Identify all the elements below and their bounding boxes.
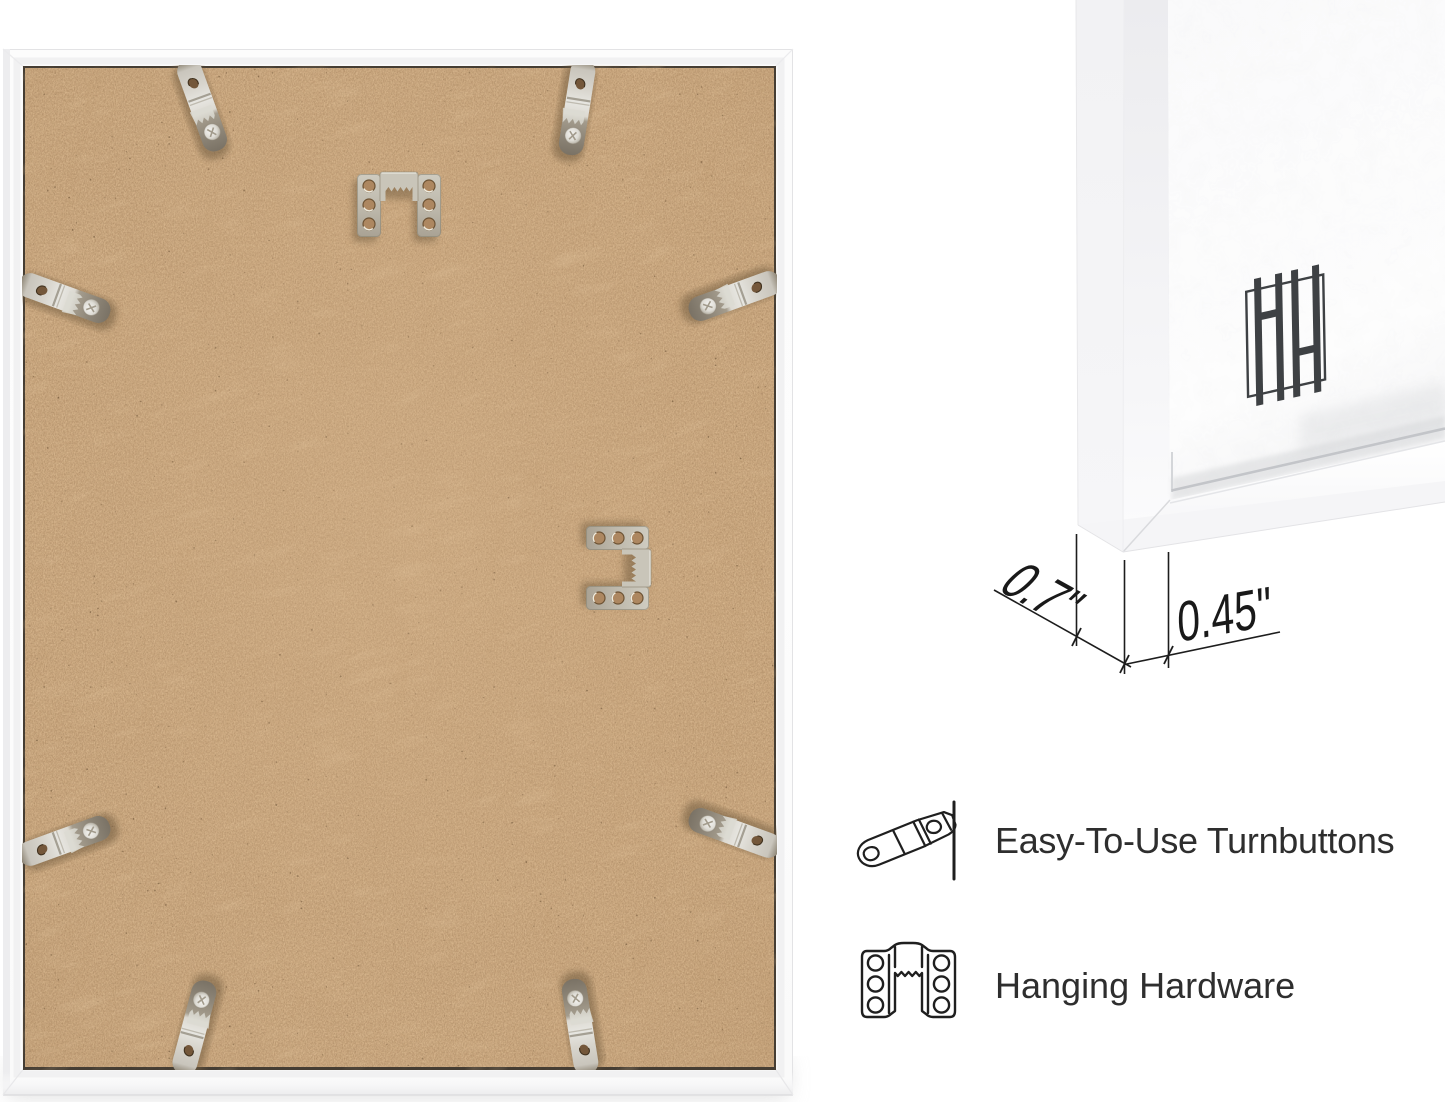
- svg-text:Hanging Hardware: Hanging Hardware: [995, 965, 1295, 1006]
- svg-text:Easy-To-Use Turnbuttons: Easy-To-Use Turnbuttons: [995, 820, 1394, 861]
